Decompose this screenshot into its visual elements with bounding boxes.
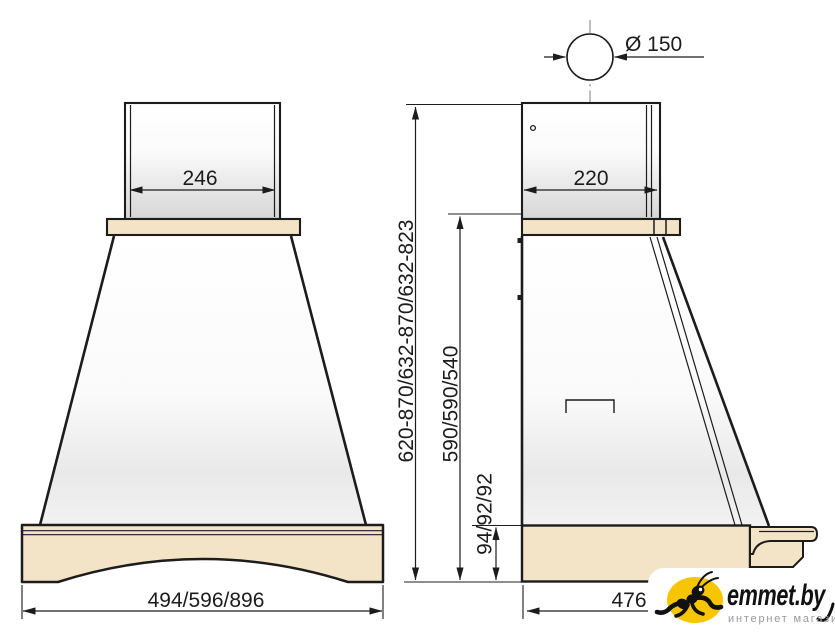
side-base-depth-label: 476 bbox=[611, 589, 646, 612]
front-base-band bbox=[22, 525, 383, 582]
base-height-label: 94/92/92 bbox=[474, 473, 497, 555]
front-duct-width-label: 246 bbox=[182, 167, 217, 190]
technical-drawing-page: 246 494/596/896 Ø 150 bbox=[0, 0, 835, 640]
front-base-width-label: 494/596/896 bbox=[148, 589, 265, 612]
wall-mount-tick-1 bbox=[518, 238, 522, 243]
brand-text: emmet.by bbox=[727, 579, 825, 613]
side-duct-depth-label: 220 bbox=[573, 167, 608, 190]
duct-screw-hole bbox=[531, 126, 536, 131]
side-cornice-shelf bbox=[522, 219, 680, 235]
wall-mount-tick-2 bbox=[518, 295, 522, 300]
overall-height-label: 620-870/632-870/632-823 bbox=[395, 220, 418, 463]
tagline-text: интернет магазин bbox=[728, 613, 835, 625]
front-hood-body bbox=[40, 236, 366, 526]
flue-diameter-label: Ø 150 bbox=[625, 33, 682, 56]
hood-dimension-drawing: 246 494/596/896 Ø 150 bbox=[0, 0, 835, 640]
ant-eye bbox=[699, 588, 702, 591]
body-height-label: 590/590/540 bbox=[440, 346, 463, 463]
side-hood-body bbox=[522, 236, 770, 526]
flue-outlet-circle bbox=[567, 34, 613, 80]
front-view: 246 494/596/896 bbox=[22, 103, 383, 619]
side-view: Ø 150 220 476 bbox=[395, 20, 817, 619]
emmet-logo[interactable]: emmet.by интернет магазин bbox=[648, 568, 835, 640]
side-chimney-duct bbox=[522, 103, 660, 219]
front-cornice-shelf bbox=[107, 219, 300, 235]
front-chimney-duct bbox=[125, 103, 280, 219]
